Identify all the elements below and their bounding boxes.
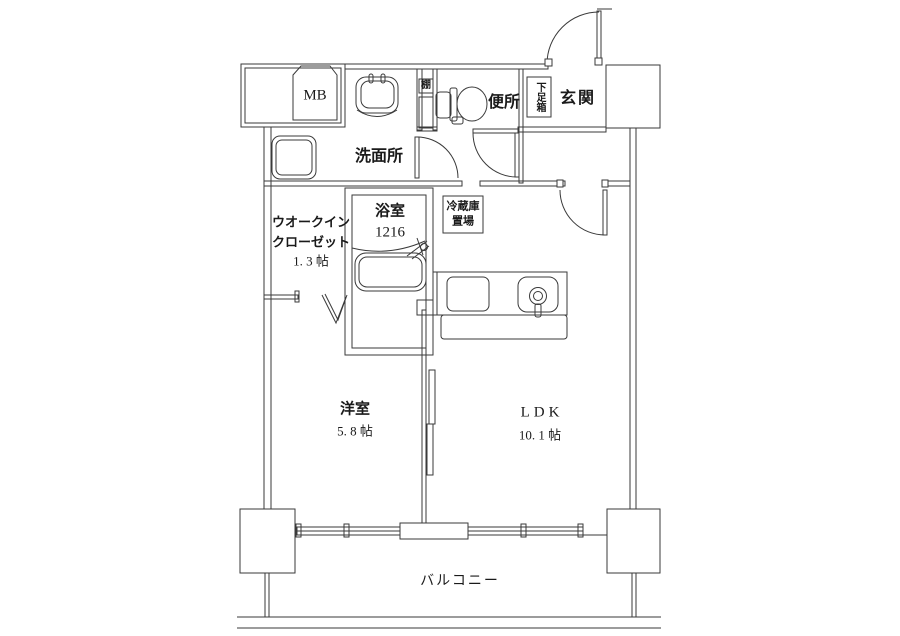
toilet-bottom-wall-b: [473, 129, 518, 133]
doors: [322, 9, 612, 323]
left-wall: [264, 127, 271, 509]
floor-plan-drawing: [0, 0, 900, 636]
floor-plan: MB 洗面所 棚 便所 下足箱 玄関 ウオークイン クローゼット 1. 3 帖 …: [0, 0, 900, 636]
bathroom-label: 浴室: [375, 205, 405, 220]
western-room-label: 洋室: [340, 403, 370, 418]
pillar-top-right: [606, 65, 660, 128]
toilet-door: [473, 133, 519, 177]
fridge-label-line2: 置場: [452, 217, 474, 228]
mid-wall-a: [264, 181, 462, 186]
window-center-block: [400, 523, 468, 539]
south-windows: [296, 523, 607, 539]
bathroom-size-label: 1216: [375, 226, 405, 241]
counter-front: [441, 315, 567, 339]
entrance-bottom-wall: [518, 127, 606, 132]
closet-folding-door: [322, 294, 347, 323]
bathroom-door: [352, 238, 429, 259]
right-wall: [630, 127, 636, 510]
ldk-label: LDK: [521, 406, 564, 421]
shelf-label: 棚: [421, 81, 431, 91]
top-wall: [345, 64, 548, 69]
wall-post: [417, 300, 433, 315]
closet-area-label: 1. 3 帖: [293, 255, 329, 268]
closet-wall-stub: [264, 295, 298, 299]
pillar-bottom-left: [240, 509, 295, 573]
mid-wall-c: [605, 181, 630, 186]
kitchen-sink: [518, 277, 558, 312]
shoe-box-label: 下足箱: [534, 82, 544, 112]
ldk-door: [557, 180, 608, 235]
pillar-bottom-right: [607, 509, 660, 573]
fridge-label-line1: 冷蔵庫: [447, 202, 480, 213]
walls: [241, 64, 636, 528]
sliding-panel-b: [427, 424, 433, 475]
washing-machine-pan: [272, 136, 316, 179]
toilet-fixture: [436, 87, 487, 124]
toilet-label: 便所: [488, 95, 520, 111]
balcony-post-left: [265, 573, 269, 617]
closet-label-line2: クローゼット: [272, 236, 350, 249]
washroom-label: 洗面所: [355, 149, 403, 165]
bathtub: [355, 253, 426, 291]
western-room-area-label: 5. 8 帖: [337, 425, 373, 438]
stove: [447, 277, 489, 311]
pillars: [240, 65, 660, 573]
faucet-icon: [530, 288, 547, 305]
entrance-label: 玄関: [560, 91, 596, 107]
entrance-door: [545, 9, 612, 66]
sliding-panel-a: [429, 370, 435, 424]
closet-label-line1: ウオークイン: [272, 216, 350, 229]
ldk-area-label: 10. 1 帖: [519, 429, 561, 442]
hallway-left-wall: [519, 69, 523, 183]
washbasin: [356, 74, 398, 117]
balcony-label: バルコニー: [420, 575, 500, 589]
meter-box-label: MB: [303, 89, 326, 104]
balcony-post-right: [632, 573, 636, 617]
room-partition-wall: [422, 310, 426, 528]
shelf-cabinet: [419, 97, 433, 128]
kitchen-side-wall: [433, 272, 437, 315]
kitchen-counter: [437, 272, 567, 339]
washroom-door: [415, 137, 458, 178]
